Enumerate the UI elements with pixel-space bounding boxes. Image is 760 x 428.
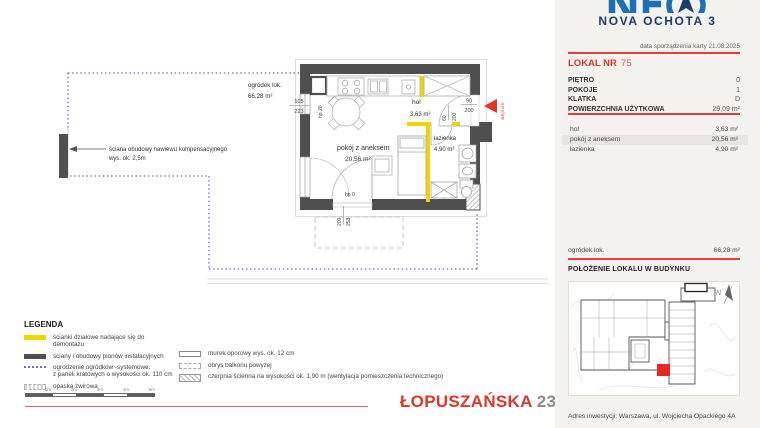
wall-note-line1: ściana obudowy nawiewu kompensacyjnego bbox=[109, 147, 228, 153]
legend-item: murek oporowy wys. ok. 12 cm bbox=[179, 350, 549, 357]
room-label-hol: hol bbox=[412, 99, 421, 106]
brand-street: ŁOPUSZAŃSKA bbox=[400, 392, 533, 411]
stove-icon bbox=[342, 80, 348, 86]
legend-item-label: ścianki działowe nadające się do demonta… bbox=[53, 334, 174, 348]
lokal-number: 75 bbox=[621, 58, 632, 69]
attribute-row: POKOJE1 bbox=[568, 86, 740, 96]
legend-item-label: obrys balkonu powyżej bbox=[208, 362, 272, 369]
north-arrow-icon: N bbox=[716, 284, 733, 304]
legend-swatch-retaining-wall bbox=[179, 351, 201, 357]
side-table bbox=[372, 156, 392, 175]
entrance-arrow-icon bbox=[484, 99, 497, 113]
bed bbox=[398, 136, 426, 195]
room-label-lazienka: łazienka bbox=[434, 136, 457, 142]
garden-label: ogródek lok. bbox=[248, 82, 282, 89]
wardrobe bbox=[424, 76, 470, 96]
red-rule bbox=[568, 258, 740, 260]
project-name: NOVA OCHOTA 3 bbox=[555, 14, 760, 28]
room-area-pokoj: 20,56 m² bbox=[345, 156, 371, 163]
legend-swatch-garden-fence bbox=[24, 366, 46, 368]
scale-bar: 1m 2m 3m 4m 5m bbox=[25, 387, 155, 397]
attribute-row: KLATKAD bbox=[568, 95, 740, 105]
svg-text:200: 200 bbox=[464, 108, 473, 114]
room-row: hol3,63 m² bbox=[568, 125, 740, 135]
lokal-info-panel: NOVA OCHOTA 3 data sporządzenia karty 21… bbox=[555, 0, 760, 428]
legend-swatch-structural-walls bbox=[24, 354, 46, 359]
legend-swatch-demountable-walls bbox=[24, 335, 46, 340]
svg-text:60: 60 bbox=[442, 115, 448, 121]
attribute-row: PIĘTRO0 bbox=[568, 76, 740, 86]
room-label-pokoj: pokój z aneksem bbox=[337, 145, 390, 152]
room-area-lazienka: 4,90 m² bbox=[434, 147, 454, 153]
balcony-outline bbox=[315, 217, 403, 248]
balcony-door bbox=[332, 159, 372, 207]
svg-text:200: 200 bbox=[452, 112, 458, 121]
legend-item: ściany i obudowy pionów instalacyjnych bbox=[24, 353, 174, 360]
svg-text:223: 223 bbox=[294, 109, 303, 115]
building-site-plan: N bbox=[568, 281, 740, 396]
scale-label: 4m bbox=[103, 387, 129, 392]
red-rule bbox=[568, 52, 740, 54]
lokal-card-page: ściana obudowy nawiewu kompensacyjnego w… bbox=[0, 0, 760, 428]
legend-item: czerpnia ścienna na wysokości ok. 1,90 m… bbox=[179, 373, 549, 382]
room-list: hol3,63 m² pokój z aneksem20,56 m² łazie… bbox=[568, 125, 740, 155]
building-footprint bbox=[581, 288, 715, 384]
garden-row: ogródek lok.66,28 m² bbox=[568, 247, 740, 254]
legend-item-label: ogrodzenie ogródków -systemowe, z paneli… bbox=[53, 364, 173, 378]
svg-text:90: 90 bbox=[466, 99, 472, 105]
scale-label: 5m bbox=[129, 387, 155, 392]
room-area-hol: 3,63 m² bbox=[410, 112, 430, 118]
svg-text:N: N bbox=[716, 290, 722, 297]
entrance-label: wejście bbox=[500, 102, 505, 120]
building-entrance-block bbox=[685, 284, 707, 292]
svg-text:200: 200 bbox=[337, 217, 343, 226]
neo-logo bbox=[555, 0, 760, 13]
red-divider bbox=[25, 406, 368, 407]
air-intake-wall bbox=[59, 134, 68, 178]
lokal-number-line: LOKAL NR75 bbox=[568, 58, 631, 69]
room-row-highlighted: pokój z aneksem20,56 m² bbox=[562, 135, 748, 145]
red-rule bbox=[568, 113, 740, 115]
legend: LEGENDA ścianki działowe nadające się do… bbox=[24, 320, 544, 334]
investment-address: Adres inwestycji: Warszawa, ul. Wojciech… bbox=[568, 413, 735, 420]
garden-area: 66,28 m² bbox=[248, 93, 272, 100]
compass-needle-icon bbox=[678, 0, 694, 13]
lokal-attributes: PIĘTRO0 POKOJE1 KLATKAD POWIERZCHNIA UŻY… bbox=[568, 76, 740, 114]
lokal-label: LOKAL NR bbox=[568, 58, 617, 69]
note-arrowhead-icon bbox=[69, 146, 77, 152]
entrance-marker: wejście bbox=[484, 99, 505, 120]
developer-logo: ŁOPUSZAŃSKA235 bbox=[400, 392, 566, 412]
legend-item: obrys balkonu powyżej bbox=[179, 362, 549, 369]
room-row: łazienka4,90 m² bbox=[568, 145, 740, 155]
svg-text:253: 253 bbox=[346, 217, 352, 226]
legend-title: LEGENDA bbox=[24, 320, 544, 329]
legend-item: ogrodzenie ogródków -systemowe, z paneli… bbox=[24, 364, 174, 378]
legend-item: ścianki działowe nadające się do demonta… bbox=[24, 334, 174, 348]
legend-item-label: murek oporowy wys. ok. 12 cm bbox=[208, 350, 294, 357]
legend-item-label: ściany i obudowy pionów instalacyjnych bbox=[53, 353, 164, 360]
legend-item-label: czerpnia ścienna na wysokości ok. 1,90 m… bbox=[208, 373, 443, 380]
scale-label: 1m bbox=[25, 387, 51, 392]
dining-table bbox=[328, 96, 365, 130]
svg-text:105: 105 bbox=[294, 99, 303, 105]
svg-text:hp 20: hp 20 bbox=[318, 105, 324, 118]
card-date: data sporządzenia karty 21.08.2025 bbox=[640, 43, 740, 50]
lokal-location-marker bbox=[657, 364, 670, 376]
scale-label: 3m bbox=[77, 387, 103, 392]
location-heading: POŁOŻENIE LOKALU W BUDYNKU bbox=[568, 266, 690, 273]
installation-shaft bbox=[311, 77, 326, 94]
svg-text:hp 0: hp 0 bbox=[345, 192, 355, 198]
window-balcony-left bbox=[300, 157, 349, 197]
scale-label: 2m bbox=[51, 387, 77, 392]
legend-swatch-balcony-outline bbox=[179, 363, 201, 369]
legend-swatch-air-inlet bbox=[179, 374, 201, 382]
kitchen-counter bbox=[327, 76, 420, 96]
wall-note-line2: wys. ok. 2,5m bbox=[108, 156, 146, 162]
